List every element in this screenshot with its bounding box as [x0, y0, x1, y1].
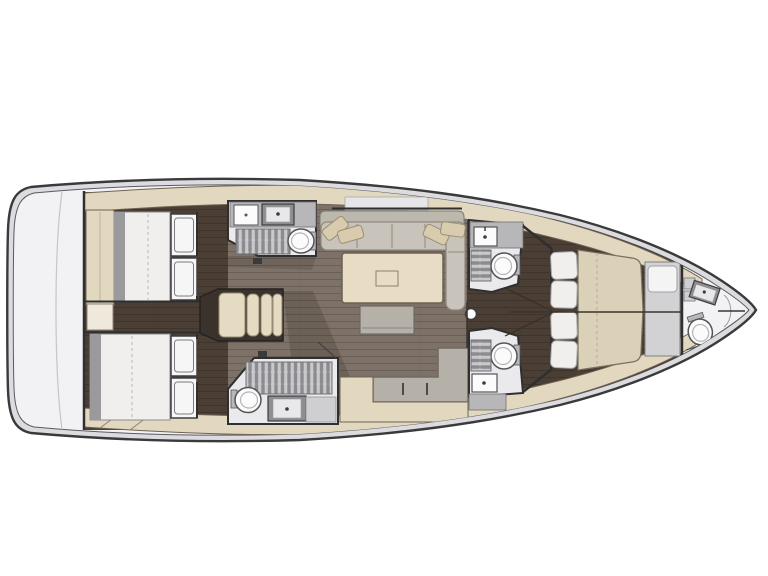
sink: [262, 204, 294, 225]
toilet-icon: [288, 229, 316, 253]
shower-grate: [471, 340, 491, 371]
sink: [268, 396, 306, 421]
double-bed: [90, 334, 170, 420]
sink: [474, 227, 497, 246]
island-double-bed: [578, 250, 643, 370]
sink: [472, 374, 497, 392]
vanity-counter: [306, 397, 336, 422]
yacht-floorplan-drawing: [0, 0, 768, 576]
salon-table: [342, 253, 443, 303]
shower-grate: [246, 362, 332, 394]
toilet-icon: [491, 343, 520, 369]
toilet-icon: [491, 253, 520, 279]
foot-bench: [645, 262, 680, 356]
storage-box: [87, 304, 113, 330]
stool-bench: [360, 306, 414, 334]
door-threshold: [258, 351, 267, 357]
yacht-floorplan-page: [0, 0, 768, 576]
companionway: [200, 289, 283, 341]
door-threshold: [253, 258, 262, 264]
aft-cabin-starboard: [86, 210, 197, 305]
cabinet: [234, 205, 258, 225]
shower-grate: [236, 229, 290, 254]
vanity-counter: [469, 394, 506, 410]
head-starboard-forward: [469, 220, 523, 292]
companionway-steps: [219, 293, 282, 337]
double-bed: [114, 212, 170, 302]
shower-grate: [471, 250, 491, 281]
